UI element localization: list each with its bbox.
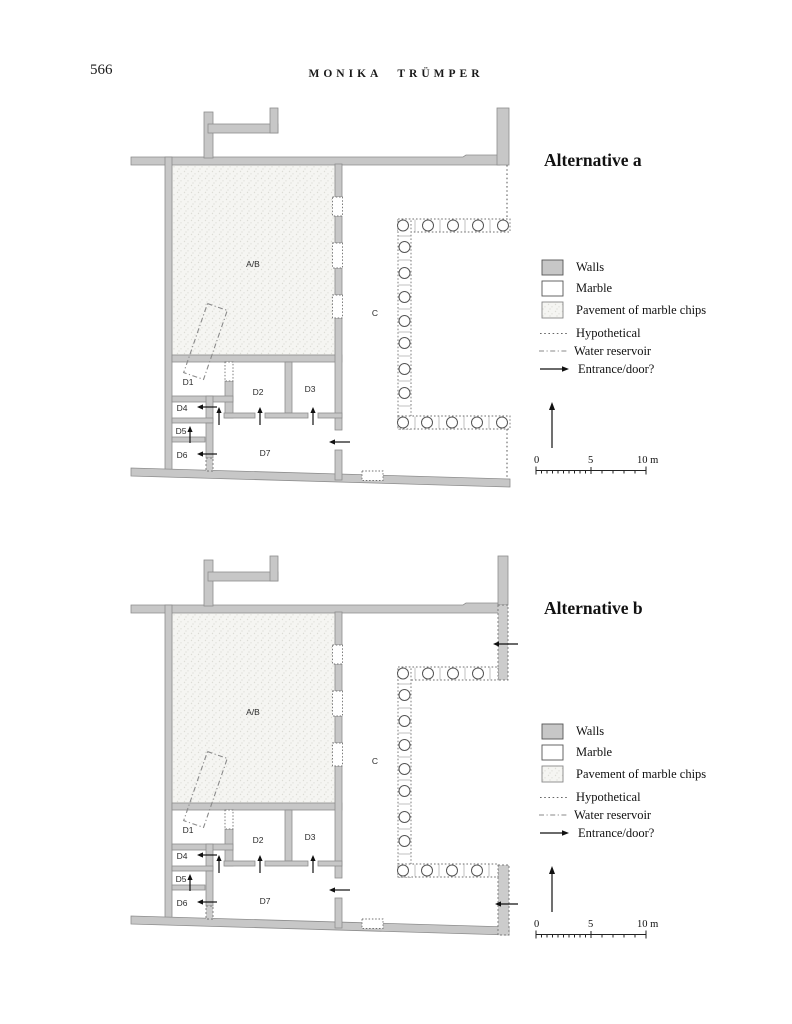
figure-title: Alternative b [544,598,643,618]
legend-label-marble: Marble [576,745,613,759]
room-label-ab: A/B [246,259,260,269]
scale-5: 5 [588,455,593,466]
room-label-d5: D5 [176,874,187,884]
legend-label-water-reservoir: Water reservoir [574,808,652,822]
document-page: 566 MONIKA TRÜMPER [0,0,792,1024]
right-wall-hypothetical-bottom [498,865,509,935]
room-label-d7: D7 [260,896,271,906]
legend-label-marble: Marble [576,281,613,295]
legend-swatch-pavement [542,766,563,782]
figure-alternative-b: A/B C D1 D2 D3 D4 D5 D6 D7 Alternative b… [120,548,720,968]
legend-label-pavement: Pavement of marble chips [576,767,706,781]
legend: Walls Marble Pavement of marble chips Hy… [534,260,706,475]
scale-0: 0 [534,455,539,466]
figure-alternative-a: A/B C D1 D2 D3 D4 D5 D6 D7 Alternative a… [120,100,720,520]
scale-10m: 10 m [637,455,658,466]
room-label-d1: D1 [183,825,194,835]
room-label-d2: D2 [253,387,264,397]
scale-10m: 10 m [637,919,658,930]
scale-5: 5 [588,919,593,930]
legend-label-entrance: Entrance/door? [578,362,655,376]
legend: Walls Marble Pavement of marble chips Hy… [534,724,706,939]
room-label-c: C [372,308,378,318]
room-label-d3: D3 [305,384,316,394]
room-label-d6: D6 [177,450,188,460]
figure-title: Alternative a [544,150,642,170]
legend-label-pavement: Pavement of marble chips [576,303,706,317]
scale-bar: 0 5 10 m [534,919,658,939]
legend-swatch-walls [542,724,563,739]
running-head: MONIKA TRÜMPER [0,68,792,80]
room-label-d7: D7 [260,448,271,458]
right-wall-upper [498,556,508,605]
right-wall-hypothetical-top [498,605,508,680]
scale-0: 0 [534,919,539,930]
floor-plan-b: A/B C D1 D2 D3 D4 D5 D6 D7 Alternative b… [120,548,720,968]
legend-swatch-walls [542,260,563,275]
room-label-d4: D4 [177,403,188,413]
legend-swatch-pavement [542,302,563,318]
room-label-d5: D5 [176,426,187,436]
room-label-c: C [372,756,378,766]
room-label-d3: D3 [305,832,316,842]
north-arrow [549,866,555,912]
legend-label-hypothetical: Hypothetical [576,790,641,804]
room-label-d4: D4 [177,851,188,861]
colonnade [398,667,499,877]
floor-plan-a: A/B C D1 D2 D3 D4 D5 D6 D7 Alternative a… [120,100,720,520]
room-label-ab: A/B [246,707,260,717]
legend-label-walls: Walls [576,260,604,274]
legend-label-water-reservoir: Water reservoir [574,344,652,358]
legend-label-entrance: Entrance/door? [578,826,655,840]
room-label-d6: D6 [177,898,188,908]
room-label-d2: D2 [253,835,264,845]
room-label-d1: D1 [183,377,194,387]
legend-label-hypothetical: Hypothetical [576,326,641,340]
legend-swatch-marble [542,281,563,296]
north-arrow [549,402,555,448]
legend-swatch-marble [542,745,563,760]
colonnade [398,219,511,429]
legend-label-walls: Walls [576,724,604,738]
scale-bar: 0 5 10 m [534,455,658,475]
